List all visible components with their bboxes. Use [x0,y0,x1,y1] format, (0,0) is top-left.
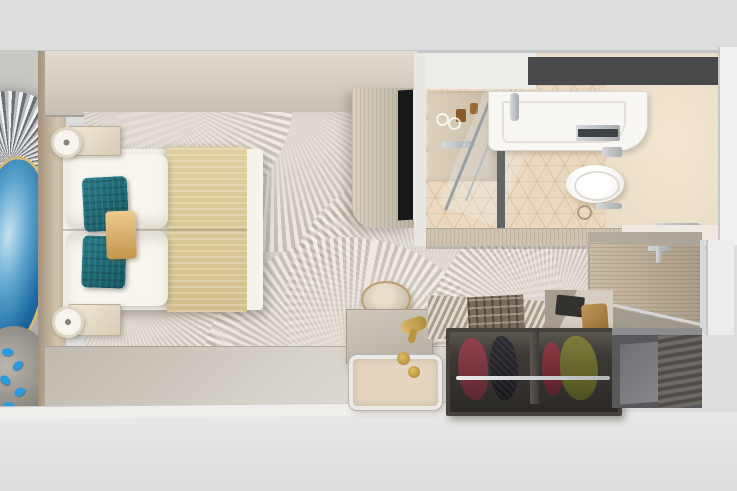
wardrobe-partition [530,332,539,404]
bathroom-partition-wall [414,53,426,246]
dark-wall-band [528,57,718,85]
top-exterior-band [0,0,737,51]
door-frame-right [700,240,705,332]
niche-top-lip [612,328,702,335]
lamp-top [51,127,82,158]
stateroom-top-view [0,0,737,491]
gold-cup [397,352,410,365]
right-exterior-panel [718,47,737,245]
wall-control [602,147,622,157]
toilet-seat-line [574,171,620,201]
garment-dark [490,336,518,400]
towel-on-shelf [578,129,618,137]
serving-tray [349,355,442,410]
lamp-bottom [52,306,84,338]
butterfly-icon [11,360,25,372]
folded-throw [105,210,137,259]
toiletry-glass [448,117,461,130]
butterfly-icon [1,346,14,357]
mattress-far-edge [247,149,263,310]
vanity-wall-strip [426,53,536,89]
clothes-rail [456,376,610,380]
garment-olive [560,336,598,400]
bottom-exterior-band [0,412,737,491]
right-exterior-lower-panel [706,240,734,335]
door-handle-stem [656,246,662,263]
luggage-niche [612,328,702,408]
butterfly-icon [0,373,12,387]
wall-mounted-tv [398,90,415,221]
garment-maroon [458,338,488,400]
garment-maroon [542,342,562,396]
floor-drain [577,205,592,220]
wardrobe-open-box [446,328,622,416]
faucet [510,93,519,121]
gold-cup [408,366,420,378]
niche-slat-wall [658,328,702,408]
butterfly-icon [13,387,25,397]
toilet-paper-holder [596,203,622,209]
bathroom [426,53,718,246]
